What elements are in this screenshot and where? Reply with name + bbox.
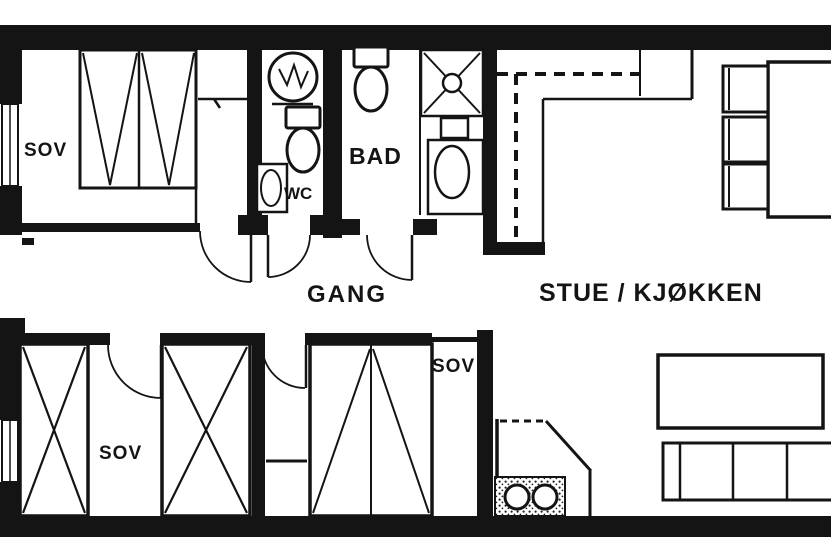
toilet-tank-icon	[354, 47, 388, 67]
corner-wood-stove-icon	[505, 485, 529, 509]
corner-wood-stove-icon	[533, 485, 557, 509]
door-swing-arc	[200, 231, 251, 282]
door-swing-arc	[262, 345, 305, 388]
wall-stue-west-lower	[477, 330, 493, 520]
wall-wc-south-pier	[238, 215, 268, 235]
wall-stue-west-upper	[483, 50, 497, 242]
room-label-wc: WC	[284, 185, 312, 202]
entry-frame-tick	[22, 238, 34, 245]
wall-left-segment	[0, 50, 22, 104]
wall-bottom	[12, 516, 831, 537]
room-label-stue-kjokken: STUE / KJØKKEN	[539, 281, 763, 306]
bathroom-sink-bowl	[435, 146, 469, 198]
wall-top	[0, 25, 831, 50]
room-label-sov-top-left: SOV	[24, 141, 67, 160]
stove-hearth-diagonal	[546, 421, 591, 471]
closet-shelf-line	[198, 99, 247, 108]
toilet-tank-icon	[286, 107, 320, 128]
dining-table-icon	[768, 62, 831, 217]
floor-plan-drawing	[0, 0, 831, 555]
wall-wc-south-pier	[310, 215, 342, 235]
room-label-gang: GANG	[307, 283, 387, 307]
kitchen-counter-south-end	[483, 242, 545, 255]
door-swing-arc	[268, 235, 310, 277]
hand-basin-bowl	[261, 170, 281, 206]
wall-wc-bad	[323, 50, 342, 238]
wall-bedrooms-divider	[252, 345, 265, 517]
toilet-bowl-icon	[355, 67, 387, 111]
door-swing-arc	[108, 345, 161, 398]
toilet-bowl-icon	[287, 128, 319, 172]
wall-bad-south-pier	[342, 219, 360, 235]
bathroom-shelf-icon	[441, 118, 468, 138]
room-label-sov-bottom-middle: SOV	[432, 357, 475, 376]
sofa-icon	[663, 443, 831, 500]
wall-bad-south-pier	[413, 219, 437, 235]
shower-drain	[443, 74, 461, 92]
room-label-bad: BAD	[349, 145, 402, 168]
room-label-sov-bottom-left: SOV	[99, 444, 142, 463]
coffee-table-icon	[658, 355, 823, 428]
floor-plan: SOV WC BAD GANG STUE / KJØKKEN SOV SOV	[0, 0, 831, 555]
door-swing-arc	[367, 235, 412, 280]
wall-thin-segment	[432, 337, 477, 342]
wall-bedroom1-south	[0, 223, 200, 232]
washing-machine-icon	[269, 53, 317, 101]
